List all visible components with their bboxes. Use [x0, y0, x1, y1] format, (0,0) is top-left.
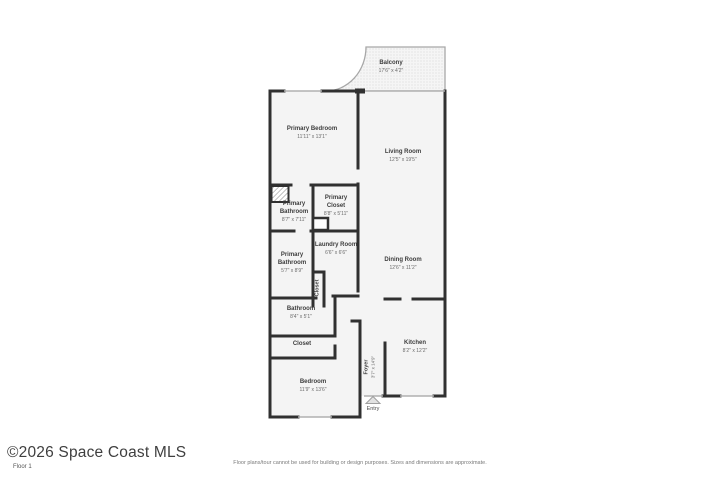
watermark-copyright: ©2026 Space Coast MLS [7, 444, 186, 462]
floorplan-drawing [0, 0, 720, 480]
floorplan-page: Balcony 17'6" x 4'2" Primary Bedroom 11'… [0, 0, 720, 480]
bedroom-floor-area [270, 91, 360, 417]
linen-closet-box [313, 218, 328, 230]
floor-indicator: Floor 1 [13, 464, 32, 470]
balcony-region [326, 47, 445, 91]
shower-hatch [272, 186, 289, 202]
entry-label: Entry [367, 406, 380, 412]
disclaimer-text: Floor plans/tour cannot be used for buil… [233, 460, 486, 466]
entry-arrow-icon [366, 397, 380, 404]
